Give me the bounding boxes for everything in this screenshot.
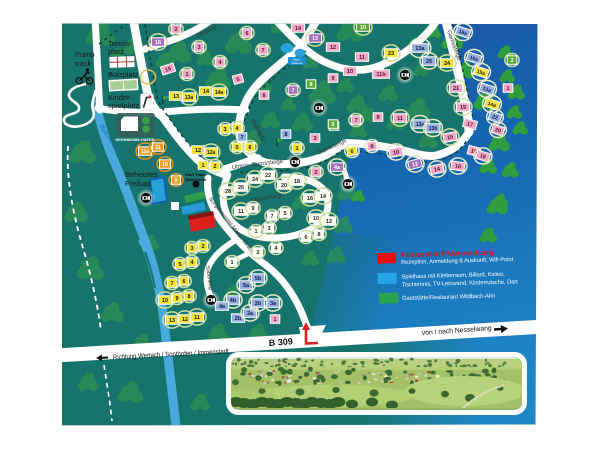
svg-text:11: 11 <box>397 116 403 122</box>
svg-text:8: 8 <box>317 232 320 238</box>
svg-text:16: 16 <box>155 40 161 46</box>
svg-text:5: 5 <box>331 122 334 128</box>
svg-text:3: 3 <box>267 226 270 232</box>
svg-text:7: 7 <box>261 48 264 54</box>
svg-text:9: 9 <box>175 296 178 302</box>
svg-text:2: 2 <box>314 170 317 176</box>
svg-text:1: 1 <box>185 72 188 78</box>
svg-text:7: 7 <box>170 281 173 287</box>
svg-text:14: 14 <box>320 194 327 200</box>
svg-text:2b: 2b <box>235 316 242 322</box>
svg-text:28: 28 <box>225 189 231 195</box>
svg-text:1: 1 <box>295 146 298 152</box>
svg-text:Bolzplatz: Bolzplatz <box>108 70 139 79</box>
svg-text:16: 16 <box>307 196 313 202</box>
svg-text:spielplatz: spielplatz <box>108 101 140 110</box>
svg-text:24: 24 <box>444 61 451 67</box>
svg-text:11: 11 <box>194 315 200 321</box>
svg-text:6: 6 <box>182 279 185 285</box>
svg-text:1: 1 <box>201 163 204 169</box>
svg-text:5b: 5b <box>255 276 262 282</box>
svg-text:10: 10 <box>162 162 168 168</box>
svg-text:12: 12 <box>182 317 188 323</box>
svg-text:3: 3 <box>223 127 226 133</box>
svg-text:11: 11 <box>238 209 244 215</box>
svg-text:7: 7 <box>240 135 243 141</box>
svg-text:23: 23 <box>388 51 394 57</box>
svg-text:9: 9 <box>376 115 379 121</box>
svg-text:1: 1 <box>506 86 509 92</box>
svg-text:16: 16 <box>454 164 461 171</box>
svg-text:11b: 11b <box>376 72 386 78</box>
svg-text:10: 10 <box>313 216 319 222</box>
svg-text:2a: 2a <box>247 311 254 317</box>
svg-text:13a: 13a <box>185 95 194 101</box>
svg-text:9: 9 <box>331 76 334 82</box>
svg-text:6: 6 <box>245 31 248 37</box>
svg-text:6: 6 <box>304 235 307 241</box>
svg-text:26: 26 <box>238 185 244 191</box>
svg-text:Pump: Pump <box>75 50 95 59</box>
svg-text:5: 5 <box>178 262 181 268</box>
svg-text:11: 11 <box>155 145 161 151</box>
svg-text:13: 13 <box>312 36 318 42</box>
svg-text:8: 8 <box>309 82 312 88</box>
svg-text:12: 12 <box>330 45 336 51</box>
svg-text:11: 11 <box>359 55 365 61</box>
svg-text:13a: 13a <box>415 46 425 52</box>
svg-text:1: 1 <box>273 317 276 323</box>
svg-text:18: 18 <box>294 179 300 185</box>
svg-text:4b: 4b <box>230 298 237 304</box>
svg-text:9: 9 <box>174 178 177 184</box>
svg-text:platz: platz <box>108 47 124 56</box>
svg-text:19: 19 <box>460 105 466 111</box>
svg-text:12a: 12a <box>207 150 216 156</box>
svg-text:14: 14 <box>295 26 302 32</box>
svg-text:14: 14 <box>203 89 210 95</box>
svg-text:11a: 11a <box>141 149 149 155</box>
svg-text:20: 20 <box>281 183 287 189</box>
svg-text:2: 2 <box>174 27 177 33</box>
svg-text:12: 12 <box>195 148 201 154</box>
svg-text:10: 10 <box>393 149 400 156</box>
svg-text:track: track <box>75 59 92 68</box>
svg-text:13b: 13b <box>429 126 438 132</box>
svg-text:1: 1 <box>254 229 257 235</box>
svg-text:3a: 3a <box>270 301 277 307</box>
svg-text:2b: 2b <box>255 301 262 307</box>
svg-text:2: 2 <box>213 164 216 170</box>
svg-text:2: 2 <box>201 244 204 250</box>
svg-text:21: 21 <box>453 86 459 92</box>
svg-text:10: 10 <box>347 69 353 75</box>
svg-text:5a: 5a <box>243 283 250 289</box>
svg-text:3: 3 <box>197 45 200 51</box>
svg-text:B 309: B 309 <box>268 336 293 348</box>
svg-text:6: 6 <box>262 93 265 99</box>
svg-text:badesee: badesee <box>292 61 303 65</box>
svg-text:25: 25 <box>426 59 432 65</box>
svg-text:Beheiztes: Beheiztes <box>125 170 158 179</box>
svg-text:4a: 4a <box>219 304 226 310</box>
svg-text:WOHNMOBILHAFEN: WOHNMOBILHAFEN <box>115 137 154 142</box>
svg-text:14a: 14a <box>215 90 224 96</box>
svg-text:8: 8 <box>187 294 190 300</box>
svg-text:24: 24 <box>252 177 259 183</box>
svg-text:7: 7 <box>270 214 273 220</box>
svg-text:3: 3 <box>313 136 316 142</box>
svg-text:3: 3 <box>190 246 193 252</box>
svg-text:Freibad: Freibad <box>125 179 150 188</box>
svg-text:8: 8 <box>284 132 287 138</box>
svg-text:10: 10 <box>360 25 366 31</box>
svg-text:15: 15 <box>447 134 454 141</box>
svg-text:13: 13 <box>173 94 179 100</box>
svg-text:Wassertrail: Wassertrail <box>185 177 206 182</box>
svg-text:22: 22 <box>265 173 271 179</box>
svg-text:10: 10 <box>162 298 168 304</box>
svg-text:2: 2 <box>256 250 259 256</box>
svg-text:4a: 4a <box>334 165 341 171</box>
svg-text:12: 12 <box>326 219 332 225</box>
svg-text:5: 5 <box>235 145 238 151</box>
svg-text:7: 7 <box>354 118 357 124</box>
svg-text:5: 5 <box>283 211 286 217</box>
svg-text:6: 6 <box>248 145 251 151</box>
svg-text:13: 13 <box>169 318 175 324</box>
svg-text:2: 2 <box>510 58 513 64</box>
svg-text:1: 1 <box>230 260 233 266</box>
svg-text:9: 9 <box>251 206 254 212</box>
svg-text:7: 7 <box>291 88 294 94</box>
